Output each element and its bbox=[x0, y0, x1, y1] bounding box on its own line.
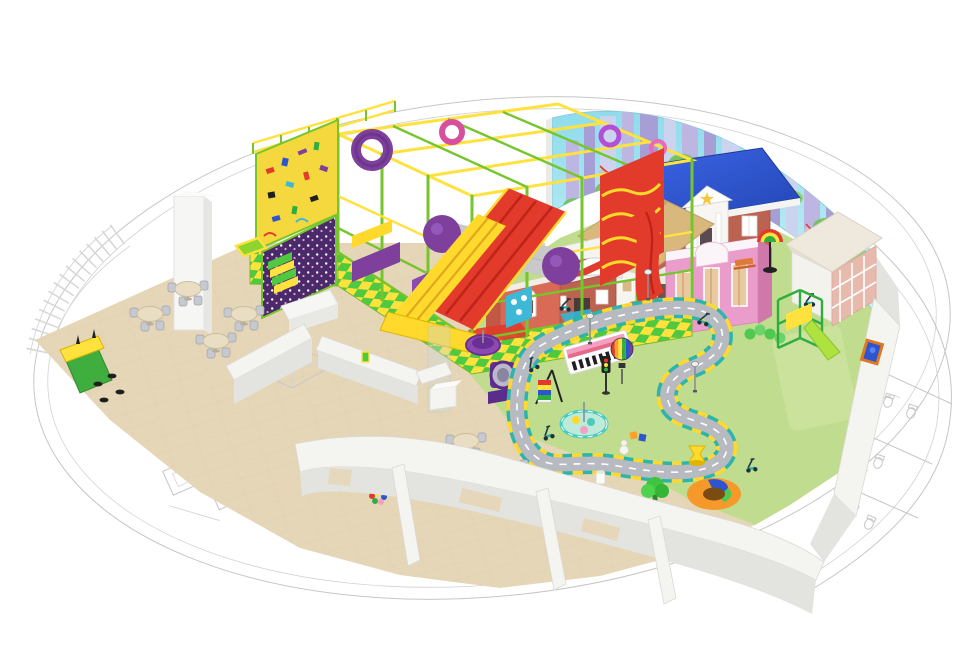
water-cup bbox=[596, 470, 605, 484]
wall-pad bbox=[362, 352, 369, 362]
room-door bbox=[328, 468, 352, 486]
soft-block bbox=[629, 431, 637, 439]
playground-render bbox=[0, 0, 972, 648]
mural-cloud bbox=[685, 113, 715, 123]
snowman-toy bbox=[620, 440, 629, 455]
soft-block bbox=[638, 434, 646, 442]
wall-picture bbox=[862, 340, 883, 364]
play-disc bbox=[442, 122, 462, 142]
mural-cloud bbox=[779, 154, 801, 162]
soft-donut-slide bbox=[687, 478, 741, 510]
